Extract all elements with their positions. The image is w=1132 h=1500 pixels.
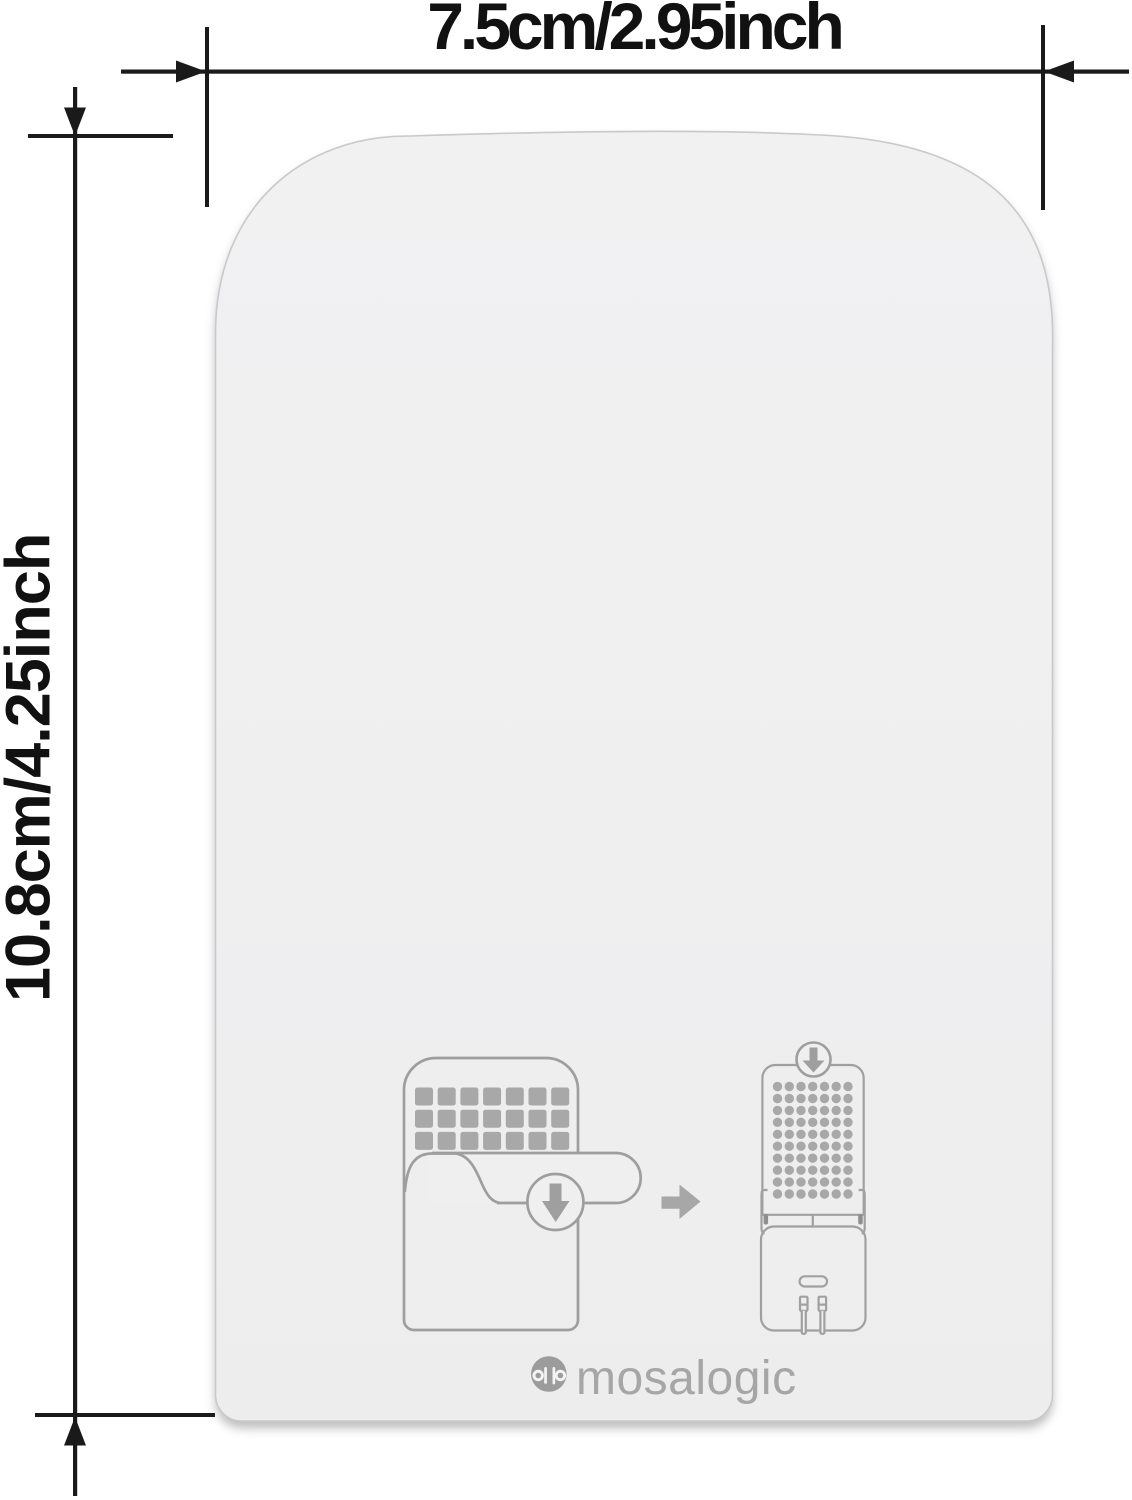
svg-text:10.8cm/4.25inch: 10.8cm/4.25inch bbox=[0, 534, 64, 1002]
svg-text:mosalogic: mosalogic bbox=[576, 1352, 797, 1405]
svg-text:7.5cm/2.95inch: 7.5cm/2.95inch bbox=[427, 0, 841, 63]
